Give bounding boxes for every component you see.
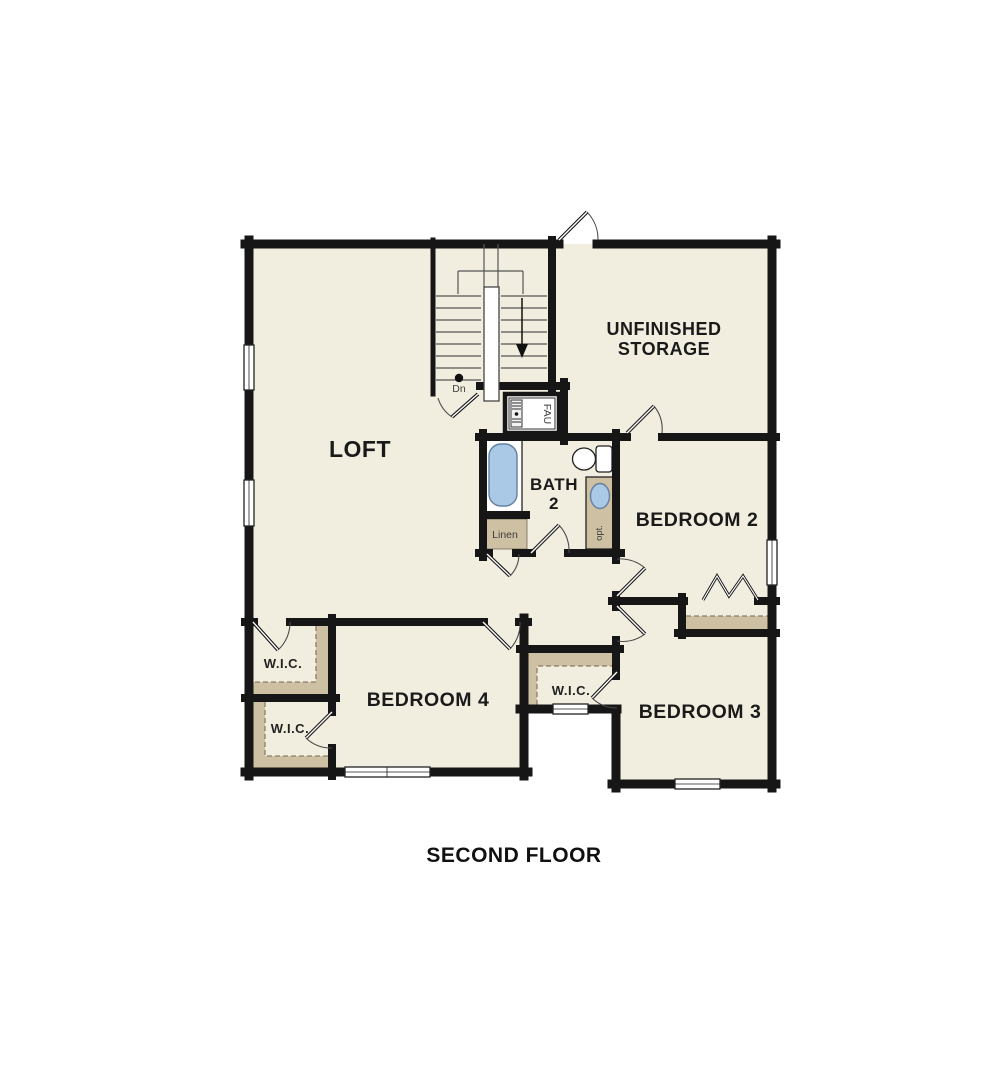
room-label-wic1: W.I.C. [264,656,302,671]
stair-rail [484,287,499,401]
label-fau: FAU [541,404,553,424]
room-label-wic2: W.I.C. [271,721,309,736]
room-label-storage-line2: STORAGE [618,339,710,359]
floor-plan: LOFT UNFINISHED STORAGE BATH 2 BEDROOM 2… [0,0,1000,1087]
room-label-wic3: W.I.C. [552,683,590,698]
room-label-storage-line1: UNFINISHED [606,319,721,339]
room-label-bedroom2: BEDROOM 2 [636,509,759,531]
room-label-bedroom4: BEDROOM 4 [367,689,490,711]
sink [591,484,610,509]
label-dn: Dn [452,383,466,395]
label-linen: Linen [492,529,518,541]
toilet-bowl [573,448,596,470]
room-label-bath-line1: BATH [530,475,578,494]
toilet-tank [596,446,612,472]
door-storage-top [559,212,598,240]
stair-dn-dot [455,374,463,382]
label-opt: opt. [594,525,605,541]
floor-plan-page: LOFT UNFINISHED STORAGE BATH 2 BEDROOM 2… [0,0,1000,1087]
water-heater-dot [515,412,519,416]
room-label-bath-line2: 2 [549,494,559,513]
page-title: SECOND FLOOR [426,844,601,867]
room-label-loft: LOFT [329,436,391,462]
wic1-shelf-bottom [253,682,328,694]
wic2-shelf [253,702,265,758]
wic2-shelf-bottom [253,756,328,768]
wic3-shelf-top [524,653,612,666]
bathtub [489,444,517,506]
room-label-bedroom3: BEDROOM 3 [639,701,762,723]
bedroom2-closet-shelf [686,616,772,629]
